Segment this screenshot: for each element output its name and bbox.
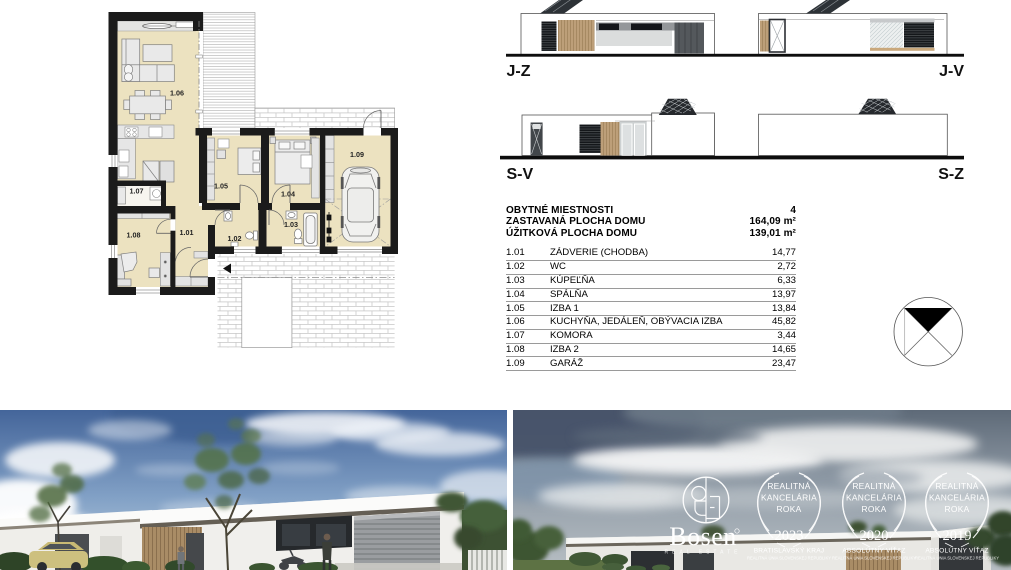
svg-text:KANCELÁRIA: KANCELÁRIA — [846, 493, 902, 503]
svg-text:REALITNÁ ÚNIA SLOVENSKEJ REPUB: REALITNÁ ÚNIA SLOVENSKEJ REPUBLIKY — [747, 556, 831, 561]
svg-text:REAL ESTATE: REAL ESTATE — [665, 550, 742, 556]
svg-text:ROKA: ROKA — [862, 504, 887, 514]
svg-text:REALITNÁ: REALITNÁ — [767, 481, 810, 491]
svg-text:1.07: 1.07 — [130, 187, 144, 196]
svg-text:1.04: 1.04 — [281, 190, 295, 199]
svg-text:1.02: 1.02 — [228, 234, 242, 243]
svg-text:2020: 2020 — [860, 528, 889, 544]
svg-text:Bosen: Bosen — [669, 522, 737, 551]
svg-text:1.08: 1.08 — [127, 231, 141, 240]
svg-text:J-Z: J-Z — [507, 63, 531, 80]
svg-text:2023: 2023 — [775, 528, 804, 544]
svg-text:ABSOLÚTNY VÍŤAZ: ABSOLÚTNY VÍŤAZ — [842, 546, 905, 555]
svg-text:1.09: 1.09 — [350, 150, 364, 159]
svg-text:REALITNÁ: REALITNÁ — [935, 481, 978, 491]
svg-text:S-V: S-V — [507, 166, 534, 183]
svg-text:1.03: 1.03 — [284, 220, 298, 229]
svg-text:J-V: J-V — [939, 63, 964, 80]
svg-text:REALITNÁ ÚNIA SLOVENSKEJ REPUB: REALITNÁ ÚNIA SLOVENSKEJ REPUBLIKY — [832, 556, 916, 561]
svg-text:1.06: 1.06 — [170, 89, 184, 98]
svg-text:1.05: 1.05 — [214, 182, 228, 191]
svg-text:ROKA: ROKA — [777, 504, 802, 514]
svg-text:KANCELÁRIA: KANCELÁRIA — [761, 493, 817, 503]
svg-text:REALITNÁ ÚNIA SLOVENSKEJ REPUB: REALITNÁ ÚNIA SLOVENSKEJ REPUBLIKY — [915, 556, 999, 561]
svg-text:1.01: 1.01 — [180, 228, 194, 237]
svg-text:KANCELÁRIA: KANCELÁRIA — [929, 493, 985, 503]
svg-text:ROKA: ROKA — [945, 504, 970, 514]
svg-text:BRATISLAVSKÝ KRAJ: BRATISLAVSKÝ KRAJ — [754, 546, 825, 555]
svg-text:REALITNÁ: REALITNÁ — [852, 481, 895, 491]
svg-text:S-Z: S-Z — [938, 166, 964, 183]
svg-text:ABSOLÚTNY VÍŤAZ: ABSOLÚTNY VÍŤAZ — [925, 546, 988, 555]
svg-text:2019: 2019 — [943, 528, 972, 544]
